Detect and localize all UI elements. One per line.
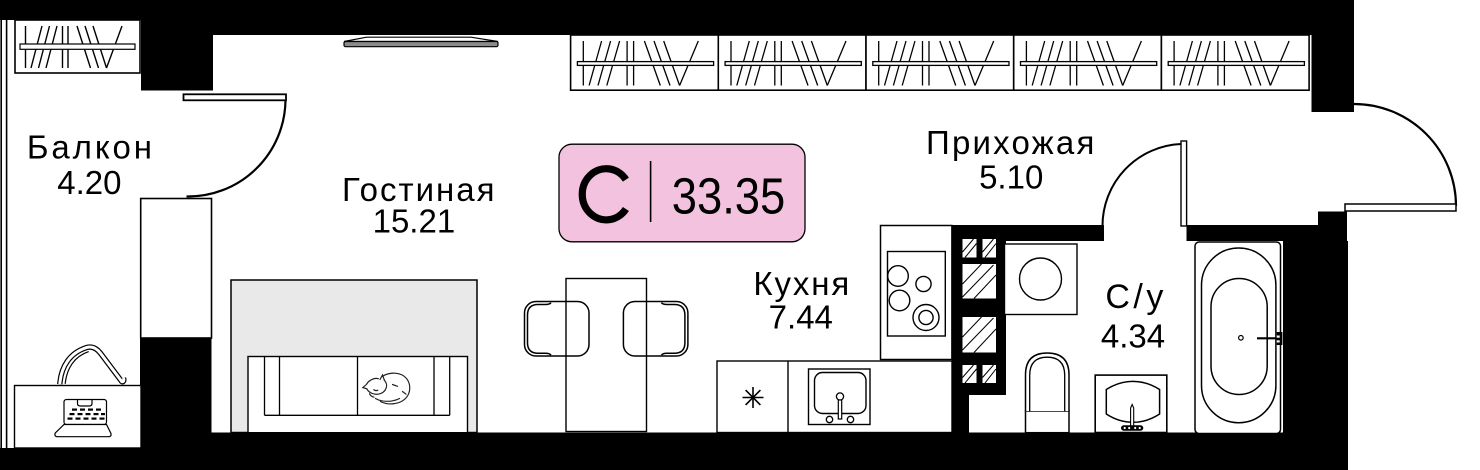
svg-text:7.44: 7.44	[769, 299, 833, 336]
svg-text:Кухня: Кухня	[753, 265, 851, 302]
svg-text:С/у: С/у	[1105, 278, 1167, 316]
svg-text:Балкон: Балкон	[27, 129, 155, 166]
svg-text:5.10: 5.10	[979, 159, 1043, 196]
svg-text:4.34: 4.34	[1101, 318, 1165, 355]
svg-text:15.21: 15.21	[373, 203, 456, 240]
svg-text:4.20: 4.20	[57, 164, 121, 201]
svg-text:33.35: 33.35	[672, 168, 786, 225]
svg-text:Прихожая: Прихожая	[926, 124, 1097, 161]
